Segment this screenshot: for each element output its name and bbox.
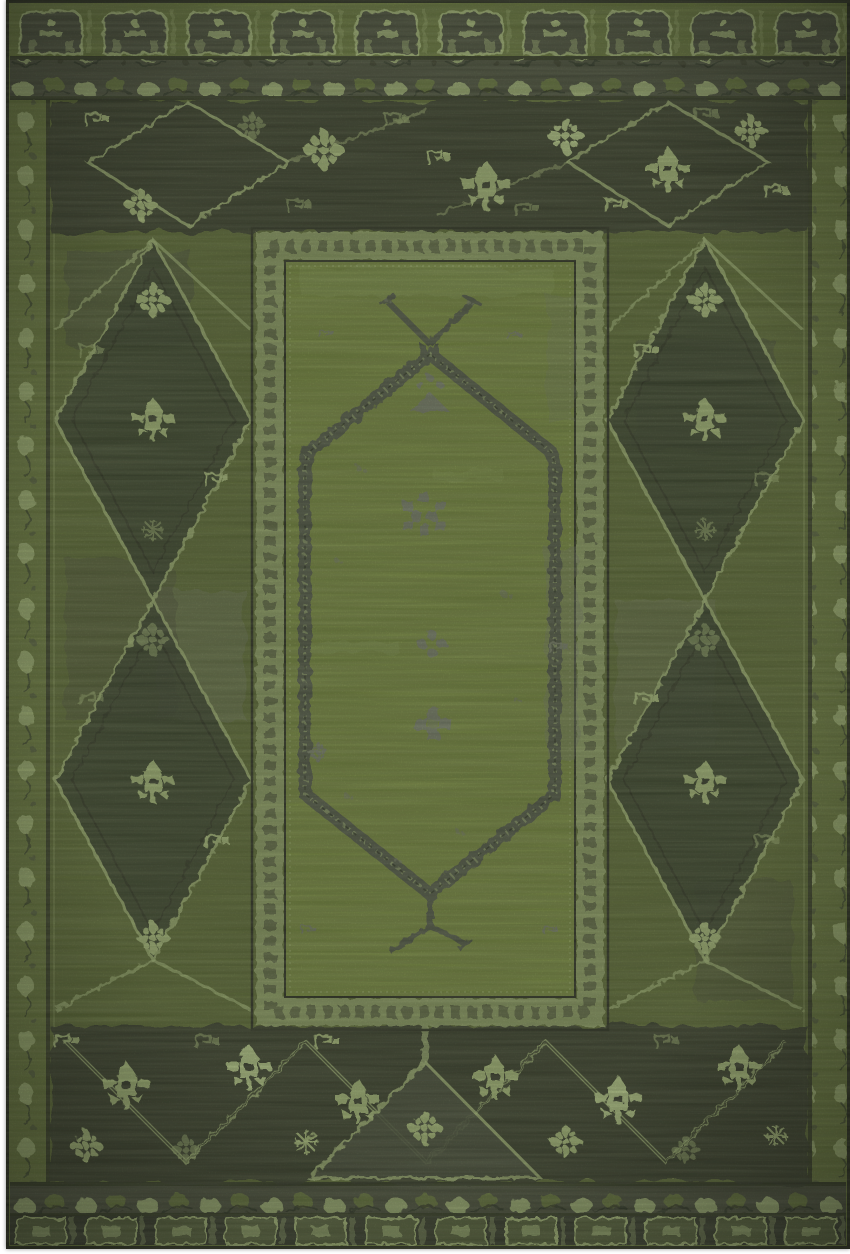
rug-photo bbox=[6, 0, 850, 1249]
rug-image: Distressed green Persian-style rug: dark… bbox=[6, 0, 850, 1249]
rug-texture-overlay bbox=[6, 0, 850, 1249]
